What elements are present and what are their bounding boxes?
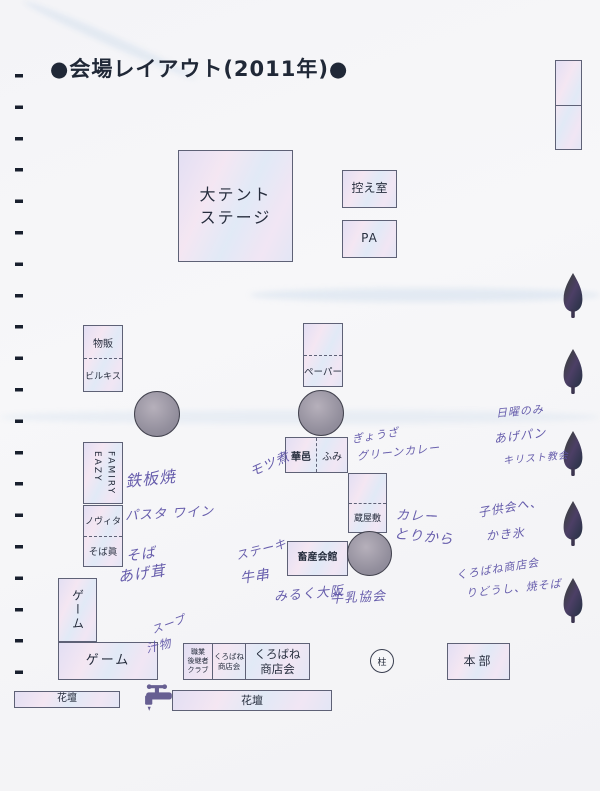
area-waiting-room-label: 控え室 [351, 180, 387, 197]
note-pasta: パスタ ワイン [125, 500, 215, 524]
tree-icon [561, 577, 585, 624]
area-game-vertical: ゲーム [58, 578, 97, 642]
note-gyukushi: 牛串 [239, 564, 271, 588]
note-kakigori: かき氷 [485, 524, 525, 544]
tree-icon [561, 348, 585, 395]
empty-cell [304, 324, 342, 355]
tree-icon [561, 272, 585, 319]
area-novita-label: ノヴィタ [85, 514, 121, 527]
area-soba-shin: そば眞 [84, 536, 122, 567]
area-game-horizontal-label: ゲーム [86, 652, 131, 671]
area-fumi: ふみ [316, 438, 347, 472]
empty-cell [556, 61, 581, 105]
area-soba-shin-label: そば眞 [89, 544, 118, 558]
area-pa: PA [342, 220, 397, 258]
area-paper: ペーパー [304, 355, 342, 387]
area-kadan-left-label: 花壇 [57, 692, 77, 707]
area-novita-sobashin: ノヴィタ そば眞 [83, 505, 123, 567]
note-shirumono: 汁物 [144, 634, 173, 657]
area-game-vertical-label: ゲーム [69, 589, 87, 631]
note-kodomokai: 子供会へ、 [477, 493, 544, 521]
note-motsuni: モツ煮 [246, 446, 292, 480]
scan-crease [250, 288, 600, 302]
note-curry: カレー [396, 504, 439, 525]
area-kurobane-large-label: くろばね 商店会 [255, 647, 301, 677]
pillar-marker: 柱 [370, 649, 394, 673]
area-chikusan-kaikan-label: 畜産会館 [298, 551, 338, 566]
note-steak: ステーキ [234, 535, 289, 564]
note-torikara: とりから [393, 523, 455, 549]
area-unlabeled-double-box [555, 60, 582, 150]
note-agepan: あげパン [493, 424, 547, 447]
area-kurayashiki-label: 蔵屋敷 [354, 511, 381, 524]
area-chikusan-kaikan: 畜産会館 [287, 541, 348, 576]
area-honbu: 本部 [447, 643, 510, 680]
area-novita: ノヴィタ [84, 506, 122, 536]
faucet-icon [142, 683, 177, 712]
area-kadan-left: 花壇 [14, 691, 120, 708]
note-agedake: あげ茸 [117, 559, 167, 586]
note-gyunyu-kyokai: 牛乳協会 [330, 585, 387, 607]
area-kamura-label: 華邑 [291, 448, 311, 463]
area-shokugyo-club-label: 職業 後継者 クラブ [188, 648, 209, 675]
area-kamura: 華邑 [286, 438, 316, 472]
area-buppan-label: 物販 [93, 335, 113, 350]
area-kurobane-small-label: くろばね 商店会 [214, 652, 244, 672]
area-paper-label: ペーパー [304, 364, 342, 378]
area-fumi-label: ふみ [322, 448, 342, 463]
area-shokugyo-club: 職業 後継者 クラブ [184, 644, 212, 679]
area-kurobane-group: 職業 後継者 クラブ くろばね 商店会 くろばね 商店会 [183, 643, 310, 680]
area-game-horizontal: ゲーム [58, 642, 158, 680]
scanned-venue-layout-page: ●会場レイアウト(2011年)● 大テント ステージ 控え室 PA 物販 ビルキ… [0, 0, 600, 791]
note-teppanyaki: 鉄板焼 [124, 463, 177, 492]
empty-cell [349, 474, 386, 503]
area-birukisu: ビルキス [84, 358, 122, 391]
area-paper-box: ペーパー [303, 323, 343, 387]
binding-dash-marks [15, 74, 23, 676]
area-birukisu-label: ビルキス [85, 369, 121, 382]
area-kurobane-large: くろばね 商店会 [245, 644, 309, 679]
area-buppan-birukisu: 物販 ビルキス [83, 325, 123, 392]
area-pa-label: PA [361, 230, 378, 247]
tree-icon [561, 500, 585, 547]
area-kamura-fumi: 華邑 ふみ [285, 437, 348, 473]
area-stage-label: 大テント ステージ [199, 183, 271, 229]
area-stage: 大テント ステージ [178, 150, 293, 262]
note-christ-church: キリスト教会 [502, 446, 569, 467]
area-kadan-right: 花壇 [172, 690, 332, 711]
area-waiting-room: 控え室 [342, 170, 397, 208]
round-tree-marker [134, 391, 180, 437]
round-tree-marker [298, 390, 344, 436]
area-kurayashiki-box: 蔵屋敷 [348, 473, 387, 533]
area-eazy-family-label: EAZY FAMIRY [90, 451, 117, 495]
area-eazy-family: EAZY FAMIRY [83, 442, 123, 504]
area-kurobane-small: くろばね 商店会 [212, 644, 245, 679]
area-kadan-right-label: 花壇 [241, 693, 263, 709]
page-title: ●会場レイアウト(2011年)● [50, 53, 348, 83]
empty-cell [556, 105, 581, 150]
pillar-label: 柱 [377, 655, 386, 668]
round-tree-marker [347, 531, 392, 576]
area-kurayashiki: 蔵屋敷 [349, 503, 386, 533]
area-buppan: 物販 [84, 326, 122, 358]
area-honbu-label: 本部 [463, 653, 493, 670]
